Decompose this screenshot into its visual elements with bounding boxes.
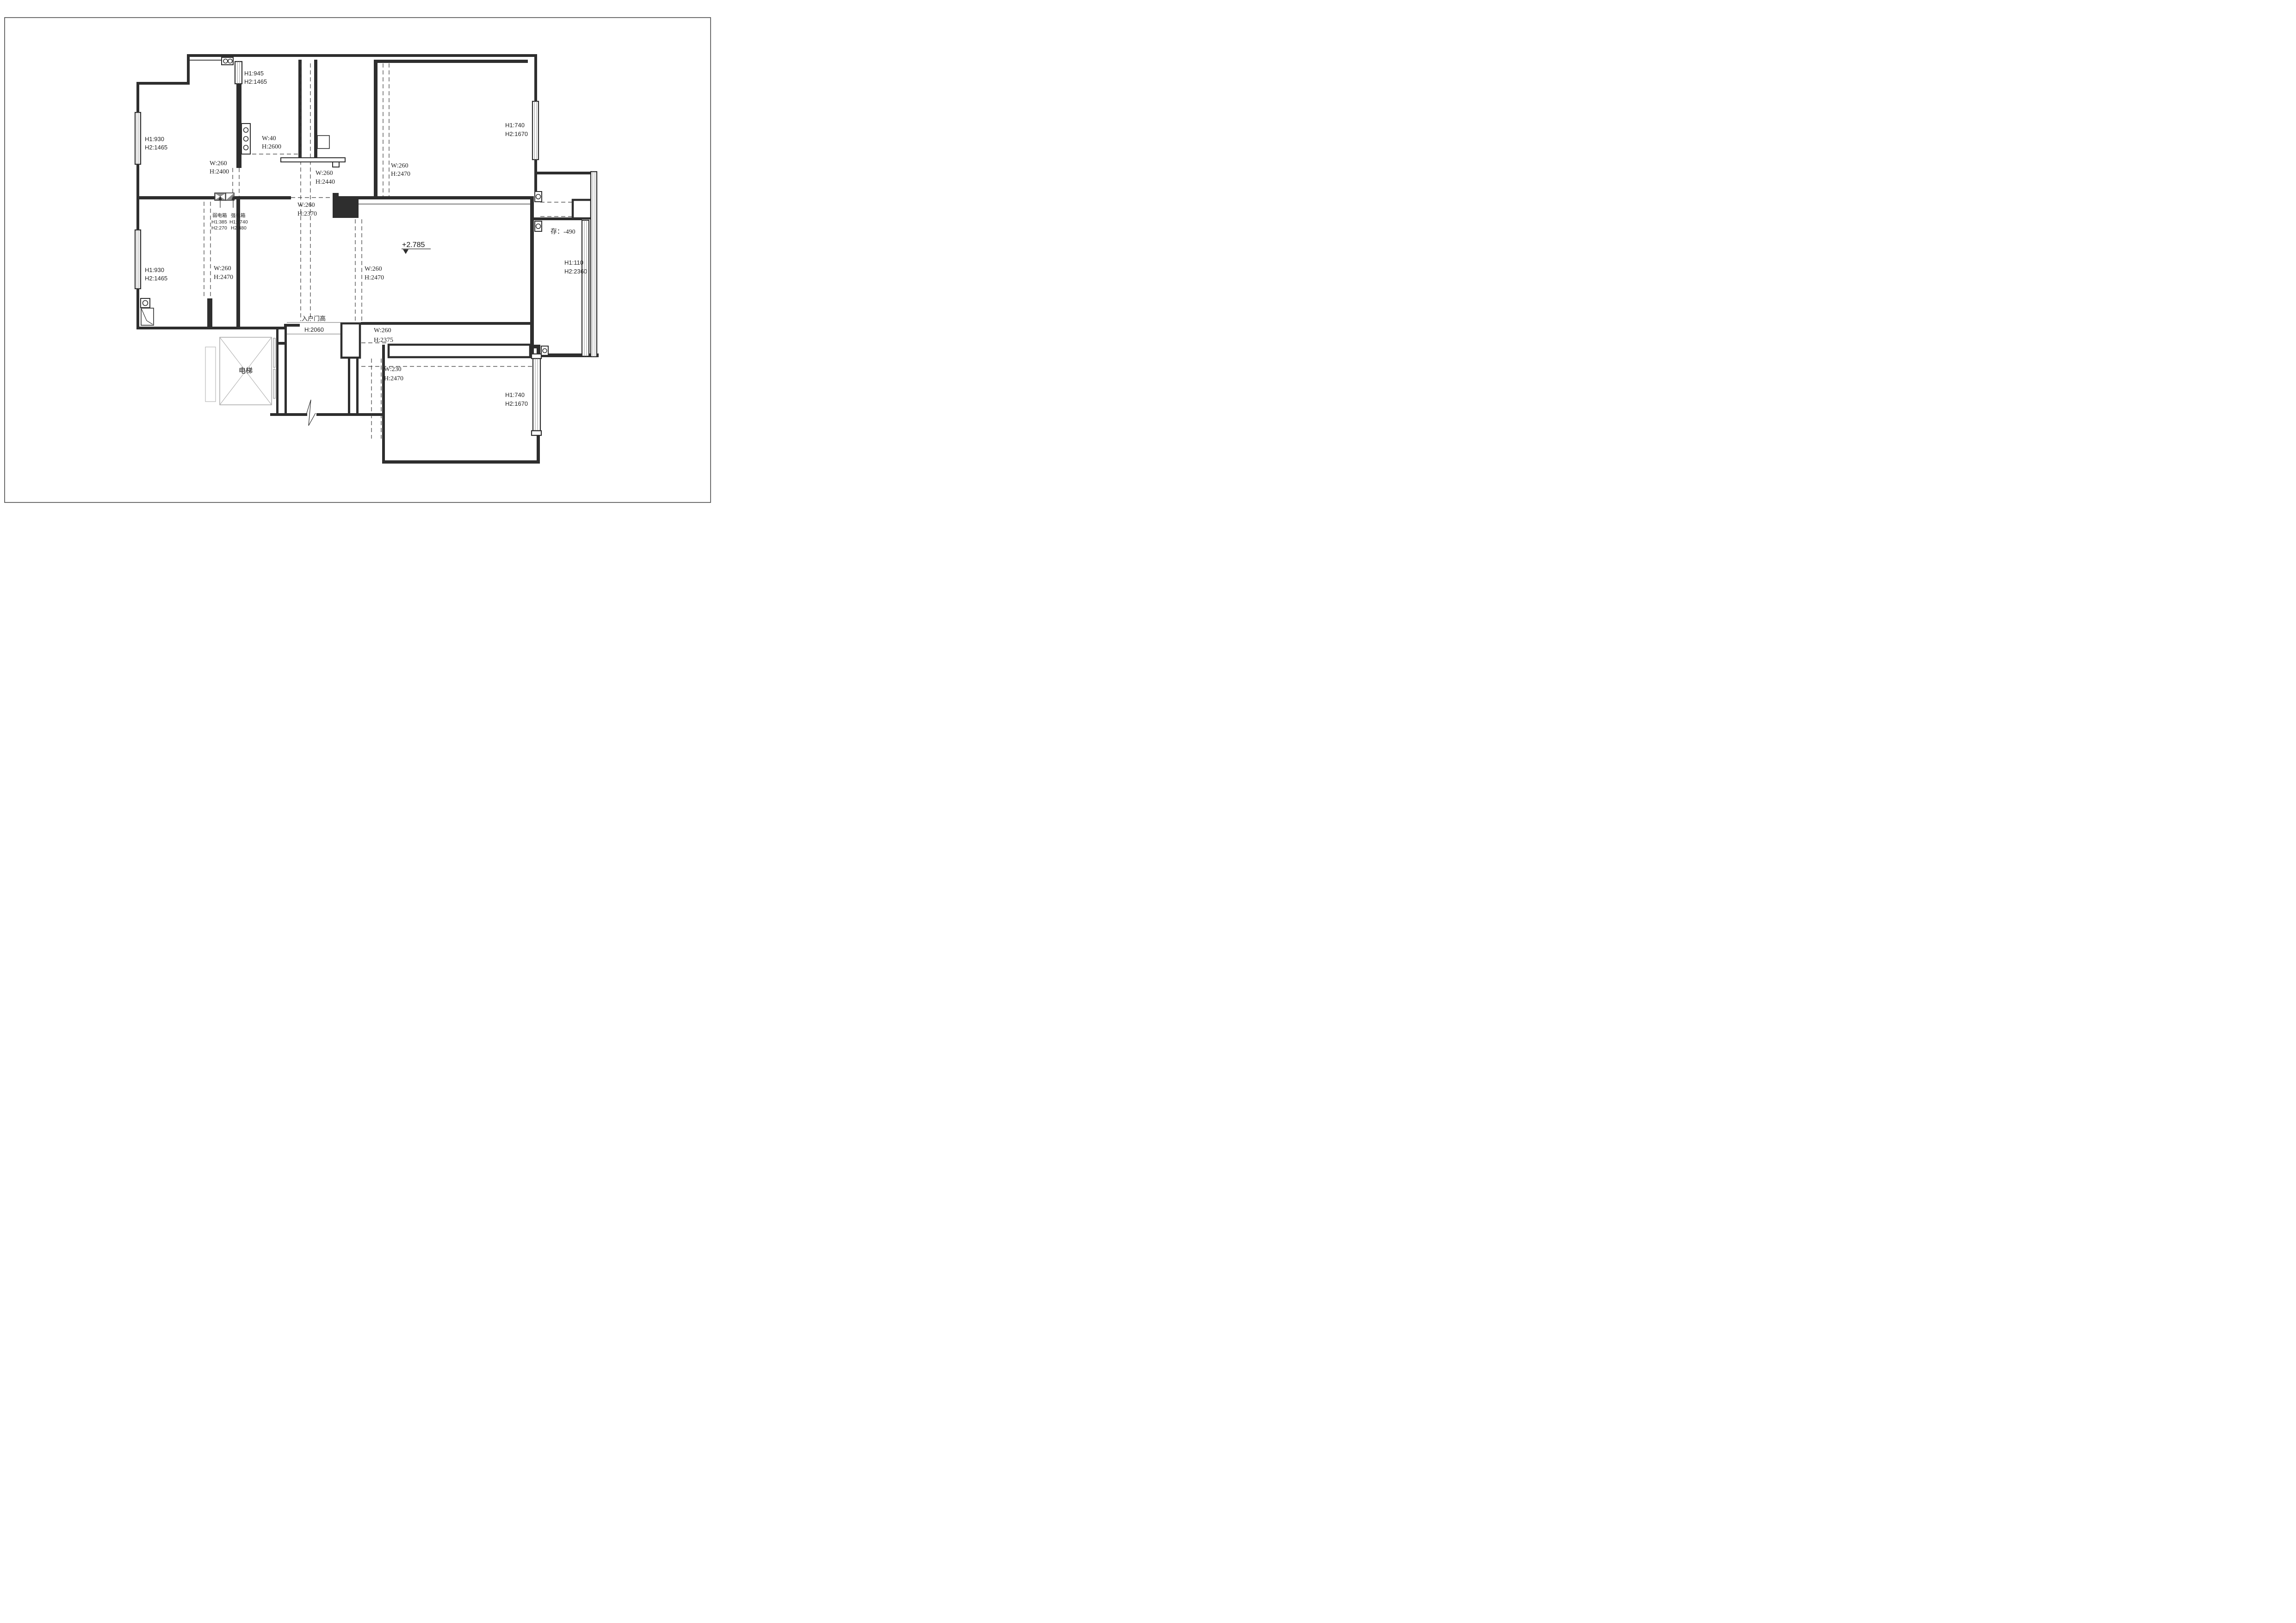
window-balcony-right [591,172,597,357]
label-open2375-1: W:260 [374,327,391,334]
label-level-mark: +2.785 [402,241,425,249]
floor-plan-canvas: H1:945 H2:1465 W:40 H:2600 H1:930 H2:146… [0,0,715,505]
label-partition40-2: H:2600 [262,143,281,150]
wall-corridor-right-a [348,359,350,416]
elevator-counterweight [205,347,216,402]
wall-bottom-left [136,327,287,329]
pass-counter [281,158,345,167]
level-triangle-icon [403,249,408,254]
wall-kitchen-right [236,84,241,168]
wall-living-bottom [361,322,530,325]
label-entry-door-title: 入户门高 [302,315,326,322]
wall-living-top [359,196,530,199]
windows [135,62,597,435]
label-window-lefttop-2: H2:1465 [145,144,167,151]
wall-balcony-top [537,172,597,174]
label-window-right-2: H2:2360 [564,268,587,275]
shaft-box [317,136,329,149]
label-open2470top-2: H:2470 [391,171,410,178]
wall-topright-left [374,60,378,196]
level-marker [402,249,431,254]
label-open230-2: H:2470 [384,375,403,382]
wall-corridor-left-a [276,327,278,416]
column-balcony [573,200,591,218]
wall-entry-bottom-left [270,413,307,416]
label-window-bottomright-1: H1:740 [505,391,525,398]
break-line-symbol [306,400,316,426]
floor-drain-icon [141,298,150,308]
label-open2370-1: W:260 [297,202,315,209]
label-window-lefttop-1: H1:930 [145,136,164,142]
elevator-door-b [273,369,275,398]
label-open230-1: W:230 [384,366,402,373]
label-window-topright-2: H2:1670 [505,130,528,137]
label-strong-box-h1: H1:1740 [229,219,248,225]
label-window-topleft-2: H2:1465 [244,78,267,85]
label-weak-box-h1: H1:385 [211,219,227,225]
wall-right-upper [534,54,537,101]
window-left-bottom [135,230,141,289]
label-open2470living-2: H:2470 [365,274,384,281]
wall-entry-jamb [284,324,300,327]
label-window-right-1: H1:110 [564,259,583,266]
wall-corridor-right-b [356,359,359,416]
wall-bath-stub [207,298,212,327]
label-open2440-1: W:260 [316,170,333,177]
label-partition40-1: W:40 [262,135,276,142]
column-entry [341,323,360,358]
riser-box-bottom-icon [541,346,548,355]
label-open2440-2: H:2440 [316,179,335,186]
label-strong-box-h2: H2:480 [231,225,247,231]
label-storage-depth: 存：-490 [551,228,576,235]
wall-midroom-left [298,60,302,159]
elevator-door-a [273,338,275,367]
gas-riser-icon [241,124,250,154]
riser-box-top-icon [535,192,542,202]
label-open2400-1: W:260 [210,160,227,167]
window-storage-glazing [582,220,589,356]
column-central [333,196,359,218]
label-open2375-2: H:2375 [374,337,393,344]
stove-icon [222,57,233,65]
page-frame [5,18,711,502]
door-leaf-symbol [141,308,154,325]
label-weak-box-name: 弱电箱 [212,212,227,218]
window-left-top [135,112,141,164]
wall-living-right [530,196,534,356]
wall-brroom-top-band [389,345,530,357]
wall-kitchen-left [187,54,190,85]
wall-midroom-right [314,60,317,159]
label-open2470left-2: H:2470 [214,274,233,281]
wall-topleft-horiz [136,82,190,85]
label-entry-door-height: H:2060 [304,326,324,333]
floor-plan-page: H1:945 H2:1465 W:40 H:2600 H1:930 H2:146… [0,0,715,505]
label-elevator: 电梯 [239,367,253,375]
wall-brroom-left [382,345,385,463]
wall-mid-horizontal-left [236,196,291,199]
label-open2470living-1: W:260 [365,266,382,273]
label-open2400-2: H:2400 [210,168,229,175]
label-window-bottomright-2: H2:1670 [505,400,528,407]
label-open2370-2: H:2370 [297,211,317,217]
drawing-border [5,18,711,502]
dashed-lines [204,63,573,439]
label-open2470top-1: W:260 [391,162,408,169]
fixtures [141,57,548,426]
wall-corridor-stub [278,342,287,345]
wall-topright-inner-top [378,60,528,63]
label-window-topright-1: H1:740 [505,122,525,129]
label-window-leftbottom-2: H2:1465 [145,275,167,282]
window-kitchen [235,62,242,84]
label-weak-box-h2: H2:270 [211,225,227,231]
label-window-topleft-1: H1:945 [244,70,264,77]
wall-top-outer [187,54,537,57]
riser-box-mid-icon [535,221,542,231]
window-bottom-right [532,354,541,435]
label-open2470left-1: W:260 [214,265,231,272]
label-window-leftbottom-1: H1:930 [145,266,164,273]
wall-corridor-left-b [285,327,287,416]
walls [136,54,599,464]
wall-bath-right [236,199,240,327]
label-strong-box-name: 强电箱 [231,212,246,218]
wall-brroom-bottom [382,460,539,464]
window-top-right [532,101,538,160]
